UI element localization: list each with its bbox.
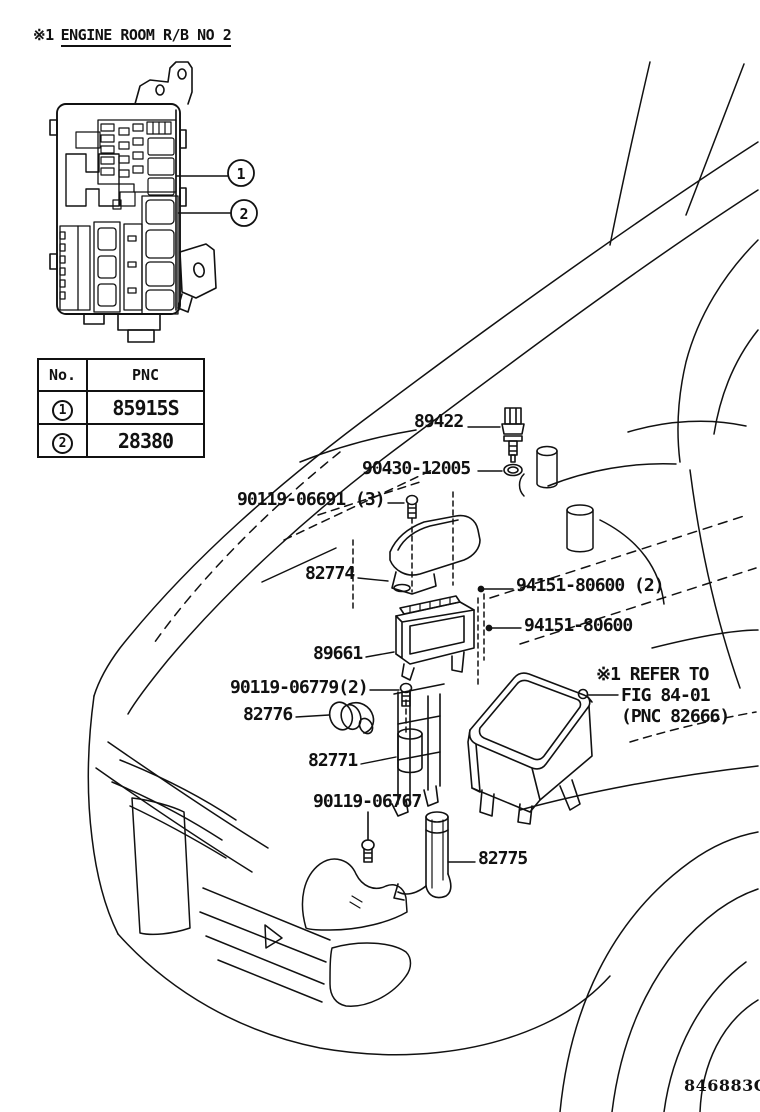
table-cell-no-2: 2 <box>38 424 87 457</box>
callout-1: 1 <box>176 160 254 186</box>
circled-number-2: 2 <box>52 433 73 454</box>
note-refer-line1: ※1 REFER TO <box>596 666 708 685</box>
label-89661: 89661 <box>313 645 362 664</box>
fusebox-illustration <box>50 62 216 342</box>
table-row: 1 85915S <box>38 391 204 424</box>
pnc-table: No. PNC 1 85915S 2 28380 <box>37 358 205 458</box>
label-82775: 82775 <box>478 850 527 869</box>
label-82774: 82774 <box>305 565 354 584</box>
part-relay-box <box>468 673 592 824</box>
table-header-row: No. PNC <box>38 359 204 391</box>
callout-1-number: 1 <box>236 165 245 183</box>
label-82771: 82771 <box>308 752 357 771</box>
part-82776-grommet <box>326 699 375 736</box>
note-refer-line3: (PNC 82666) <box>621 708 729 727</box>
label-89422: 89422 <box>414 413 463 432</box>
note-refer-line2: FIG 84-01 <box>621 687 710 706</box>
table-cell-no-1: 1 <box>38 391 87 424</box>
part-90119-06767-bolt <box>362 812 374 862</box>
table-header-pnc: PNC <box>87 359 204 391</box>
title-text: ENGINE ROOM R/B NO 2 <box>61 26 232 47</box>
parts-diagram-page: 1 2 <box>0 0 760 1112</box>
table-row: 2 28380 <box>38 424 204 457</box>
label-90119-06691: 90119-06691 (3) <box>237 491 385 510</box>
label-94151-80600: 94151-80600 <box>524 617 632 636</box>
part-82774-cover <box>390 516 480 594</box>
label-90119-06779: 90119-06779(2) <box>230 679 368 698</box>
part-82775-duct <box>394 812 451 900</box>
part-89661-ecu <box>396 596 474 680</box>
page-title: ※1ENGINE ROOM R/B NO 2 <box>33 26 231 44</box>
table-cell-pnc-1: 85915S <box>87 391 204 424</box>
part-89422-sensor <box>502 408 524 462</box>
label-90430-12005: 90430-12005 <box>362 460 470 479</box>
label-94151-80600-2: 94151-80600 (2) <box>516 577 664 596</box>
table-cell-pnc-2: 28380 <box>87 424 204 457</box>
callout-2-number: 2 <box>239 205 248 223</box>
part-94151-screws <box>478 586 491 630</box>
diagram-artwork: 1 2 <box>0 0 760 1112</box>
part-90430-gasket <box>504 465 522 476</box>
callout-2: 2 <box>178 200 257 226</box>
part-90119-06691-bolt <box>407 496 418 519</box>
label-82776: 82776 <box>243 706 292 725</box>
figure-code: 846883G <box>684 1076 760 1095</box>
circled-number-1: 1 <box>52 400 73 421</box>
label-90119-06767: 90119-06767 <box>313 793 421 812</box>
title-ref-mark: ※1 <box>33 26 54 44</box>
table-header-no: No. <box>38 359 87 391</box>
